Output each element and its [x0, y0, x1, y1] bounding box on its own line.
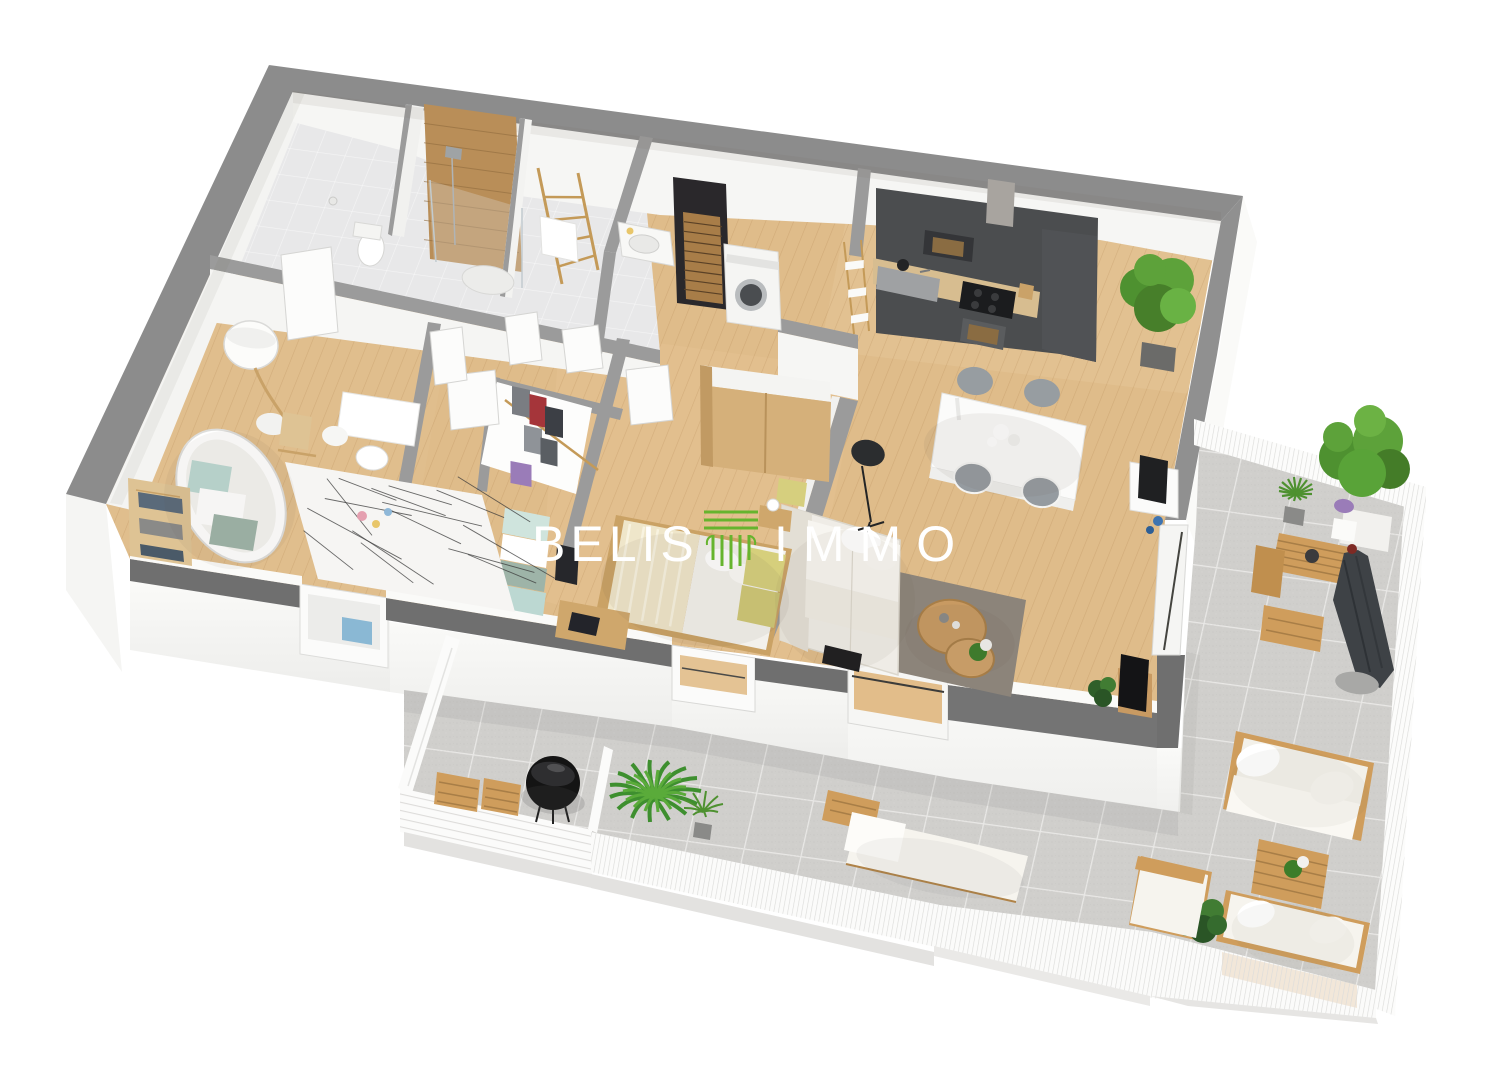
svg-text:BELIS: BELIS [532, 516, 699, 572]
svg-text:IMMO: IMMO [774, 516, 970, 572]
